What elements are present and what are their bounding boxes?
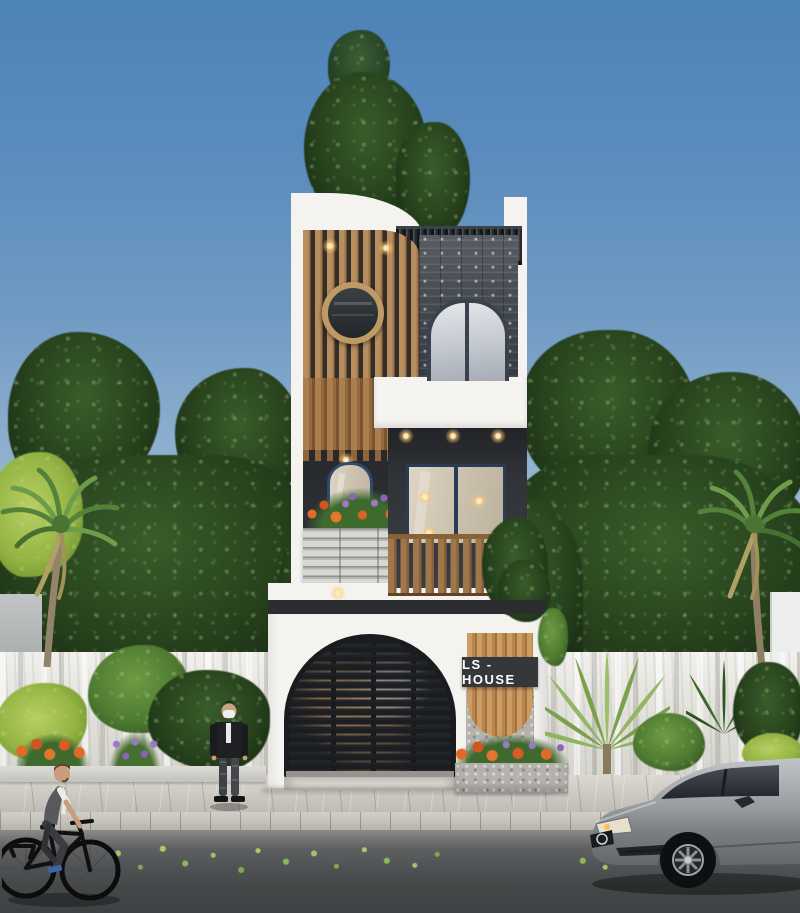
- palm-tree-left: [0, 462, 130, 667]
- house-sign-label: LS - HOUSE: [462, 657, 538, 687]
- balcony-downlight-3: [490, 428, 506, 444]
- balcony-downlight-1: [398, 428, 414, 444]
- round-window: [322, 282, 384, 344]
- cyclist: [2, 748, 127, 910]
- gate-mullion-3: [411, 639, 416, 773]
- arch-window-floor3: [427, 299, 509, 381]
- masked-pedestrian: [203, 700, 255, 812]
- gate-mullion-1: [331, 639, 336, 773]
- house-sign: LS - HOUSE: [462, 657, 538, 687]
- planter-right-box: [455, 763, 568, 793]
- palm-tree-right: [692, 468, 800, 668]
- arched-garage-gate: [284, 634, 456, 778]
- arch-window-mullion: [465, 303, 469, 381]
- fallen-leaves: [90, 835, 650, 881]
- round-window-reflection2: [332, 314, 374, 316]
- slat-downlight-2: [378, 240, 394, 256]
- door-mullion: [454, 467, 458, 543]
- exterior-render-scene: LS - HOUSE: [0, 0, 800, 913]
- sign-side-greenery: [538, 608, 568, 666]
- ground-fascia-band: [268, 600, 546, 614]
- slat-downlight-1: [322, 238, 338, 254]
- door-light-2: [471, 493, 487, 509]
- balcony-downlight-2: [445, 428, 461, 444]
- round-window-reflection: [334, 302, 372, 305]
- silver-sedan: [586, 738, 800, 903]
- strip-downlight: [330, 585, 346, 601]
- floor-slab: [374, 377, 527, 428]
- gate-mullion-2: [371, 639, 376, 773]
- door-light-1: [417, 489, 433, 505]
